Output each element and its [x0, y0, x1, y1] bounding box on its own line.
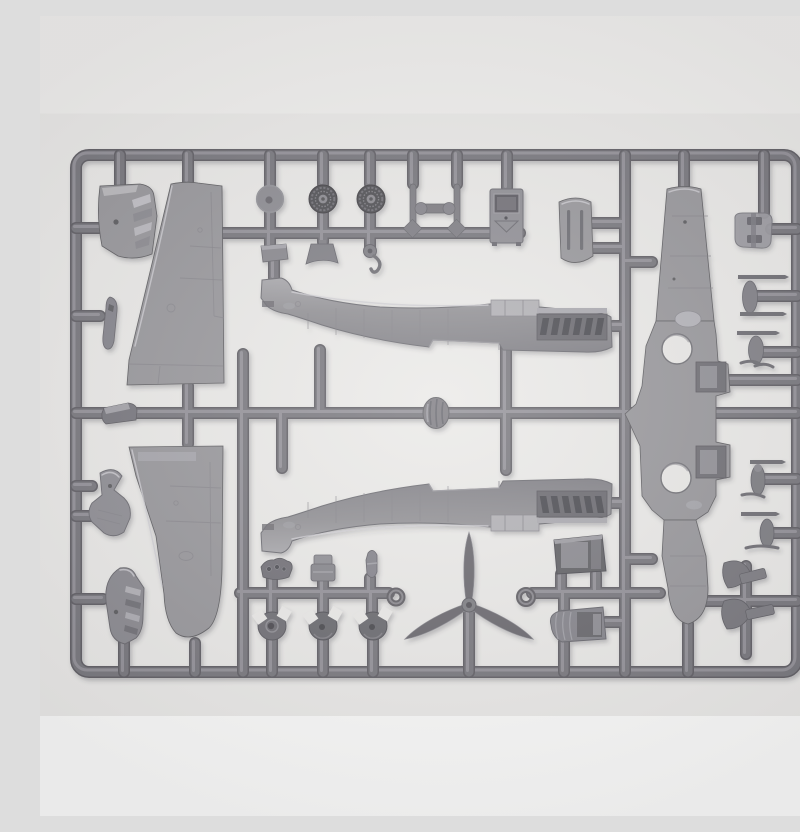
part-access-plate: [261, 244, 288, 262]
part-wing-root-fairing: [89, 470, 130, 536]
sight-ring-1: [390, 591, 403, 604]
part-spinner-backplate-disc: [257, 186, 284, 213]
part-instrument-panel-mini: [261, 558, 292, 579]
part-small-fin: [366, 550, 377, 577]
part-main-wheel-2: [357, 185, 385, 213]
part-headrest-hood: [102, 403, 137, 424]
part-seat-pan: [311, 555, 335, 581]
sight-ring-2: [519, 590, 533, 604]
part-pilot-seat-frame: [735, 213, 772, 248]
sprue-photo: Gray plastic injection-moulded sprue (pa…: [40, 16, 800, 816]
part-fuselage-half-right: [261, 278, 612, 352]
part-aileron-blade: [103, 297, 117, 349]
part-main-wheel-1: [309, 185, 337, 213]
part-cowling-louvre-panel: [98, 184, 157, 258]
part-radiator-housing-open: [554, 535, 606, 574]
part-engine-cowl-top: [559, 198, 593, 263]
part-radio-box: [490, 189, 523, 246]
part-hook-ring: [364, 245, 380, 273]
part-bell-mount: [306, 240, 338, 264]
part-spinner-oval: [423, 398, 449, 429]
sprue-drawing: ICM: [40, 16, 800, 816]
part-louvred-cowl-side: [106, 568, 144, 644]
part-radiator-housing-teardrop: [550, 607, 606, 642]
part-gear-leg-small-2: [741, 512, 780, 548]
